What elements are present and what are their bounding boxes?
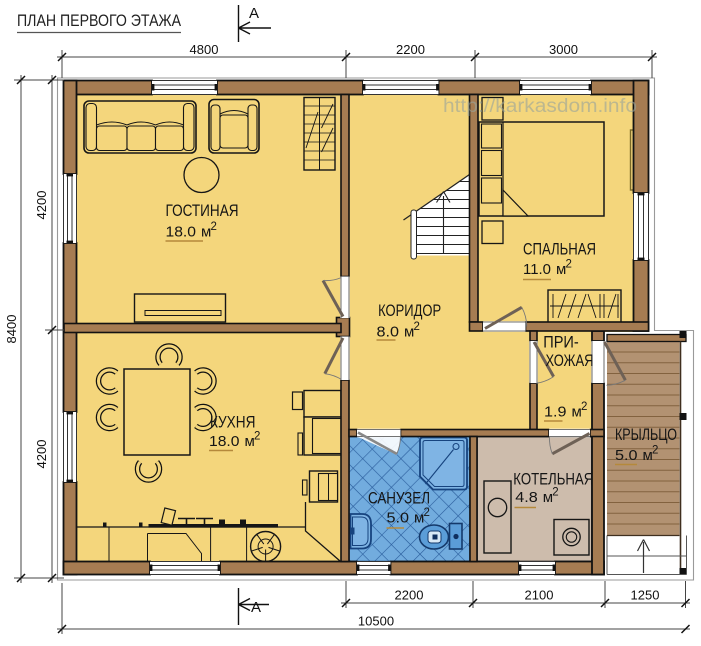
- svg-text:А: А: [251, 599, 261, 616]
- svg-text:4800: 4800: [190, 42, 219, 57]
- svg-text:ПЛАН ПЕРВОГО ЭТАЖА: ПЛАН ПЕРВОГО ЭТАЖА: [17, 11, 182, 30]
- svg-text:11.0: 11.0: [523, 261, 551, 278]
- svg-text:8400: 8400: [4, 315, 19, 344]
- svg-text:2200: 2200: [396, 42, 425, 57]
- svg-text:http://karkasdom.info: http://karkasdom.info: [443, 96, 637, 117]
- svg-text:КОРИДОР: КОРИДОР: [378, 302, 441, 320]
- svg-text:4200: 4200: [34, 440, 49, 469]
- svg-text:ПРИ-: ПРИ-: [543, 334, 579, 352]
- svg-text:ХОЖАЯ: ХОЖАЯ: [546, 352, 594, 370]
- svg-text:2: 2: [566, 259, 572, 271]
- svg-text:1.9: 1.9: [544, 404, 567, 421]
- svg-text:2: 2: [581, 401, 587, 413]
- svg-text:4.8: 4.8: [515, 489, 538, 506]
- svg-text:3000: 3000: [549, 42, 578, 57]
- svg-text:10500: 10500: [358, 614, 394, 629]
- svg-text:2: 2: [254, 430, 260, 442]
- svg-text:2100: 2100: [525, 588, 554, 603]
- svg-text:2: 2: [652, 445, 658, 457]
- svg-text:СПАЛЬНАЯ: СПАЛЬНАЯ: [523, 241, 596, 259]
- svg-text:2: 2: [211, 221, 217, 233]
- svg-text:8.0: 8.0: [377, 324, 400, 341]
- svg-text:5.0: 5.0: [615, 447, 638, 464]
- svg-text:2: 2: [424, 507, 430, 519]
- svg-text:1250: 1250: [631, 588, 660, 603]
- svg-text:4200: 4200: [34, 191, 49, 220]
- svg-text:ГОСТИНАЯ: ГОСТИНАЯ: [166, 202, 239, 220]
- svg-text:5.0: 5.0: [387, 510, 410, 527]
- svg-text:А: А: [249, 5, 259, 22]
- svg-text:18.0: 18.0: [166, 224, 197, 241]
- svg-text:2: 2: [414, 321, 420, 333]
- svg-text:САНУЗЕЛ: САНУЗЕЛ: [368, 490, 430, 508]
- svg-text:КРЫЛЬЦО: КРЫЛЬЦО: [615, 426, 677, 444]
- svg-text:2: 2: [552, 487, 558, 499]
- svg-text:18.0: 18.0: [209, 433, 240, 450]
- svg-text:КУХНЯ: КУХНЯ: [210, 414, 256, 432]
- svg-text:2200: 2200: [395, 588, 424, 603]
